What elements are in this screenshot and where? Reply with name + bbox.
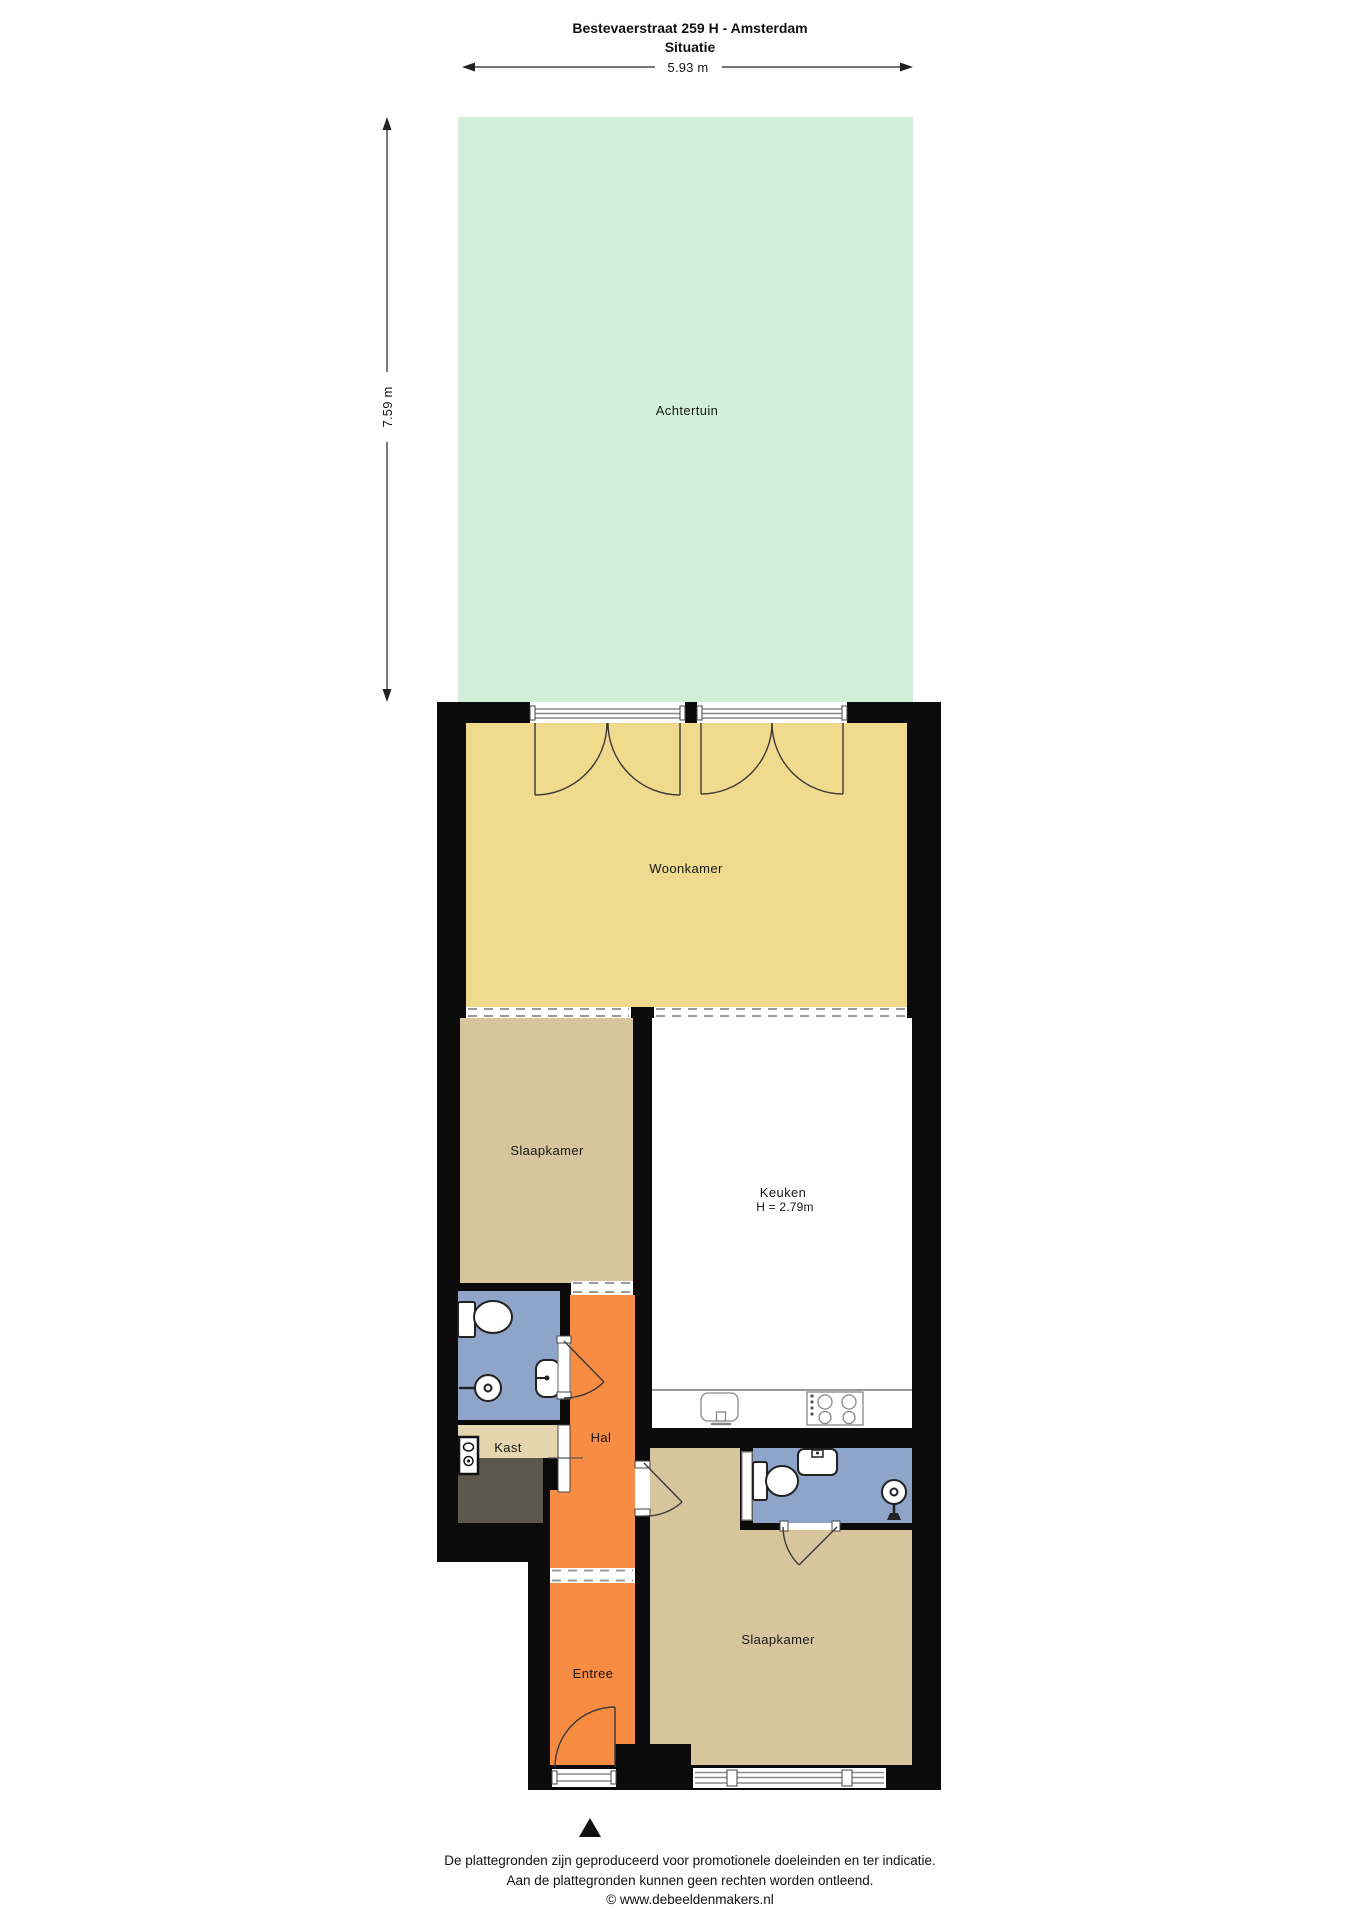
toilet-icon [753,1462,798,1500]
credit-line: © www.debeeldenmakers.nl [22,1890,1358,1910]
garden-door-opening-right [697,702,847,723]
arrow-up-icon [383,117,392,130]
disclaimer-line-1: De plattegronden zijn geproduceerd voor … [22,1851,1358,1871]
wall-corner-block [615,1744,691,1790]
room-label-woonkamer: Woonkamer [649,861,723,876]
stove-icon [807,1392,863,1425]
arrow-down-icon [383,689,392,702]
floorplan-canvas: Achtertuin 5.93 m 7.59 m [0,0,1358,1920]
room-label-keuken: Keuken [760,1185,807,1200]
open-boundary-woonkamer [466,1007,907,1018]
depth-dimension-label: 7.59 m [380,387,395,428]
room-keuken [652,1018,912,1428]
room-label-keuken-height: H = 2.79m [756,1200,814,1214]
disclaimer-line-2: Aan de plattegronden kunnen geen rechten… [22,1871,1358,1891]
arrow-left-icon [462,63,475,72]
arrow-right-icon [900,63,913,72]
open-boundary-entree [550,1568,635,1583]
room-label-slaapkamer-1: Slaapkamer [510,1143,584,1158]
open-boundary-hal [571,1281,633,1295]
sink-icon [536,1360,560,1397]
window-band [693,1768,886,1788]
footer-disclaimer: De plattegronden zijn geproduceerd voor … [22,1851,1358,1910]
appliance-icon [459,1437,478,1474]
entrance-arrow-icon [579,1818,601,1837]
room-label-slaapkamer-2: Slaapkamer [741,1632,815,1647]
garden-label: Achtertuin [656,403,719,418]
kitchen-sink-icon [701,1393,738,1424]
room-label-kast: Kast [494,1440,522,1455]
room-label-entree: Entree [573,1666,614,1681]
garden-door-opening-left [530,702,685,723]
room-label-hal: Hal [591,1430,612,1445]
width-dimension-label: 5.93 m [668,60,709,75]
sink-icon [798,1449,837,1475]
bathroom-2-door-slab [742,1452,752,1520]
